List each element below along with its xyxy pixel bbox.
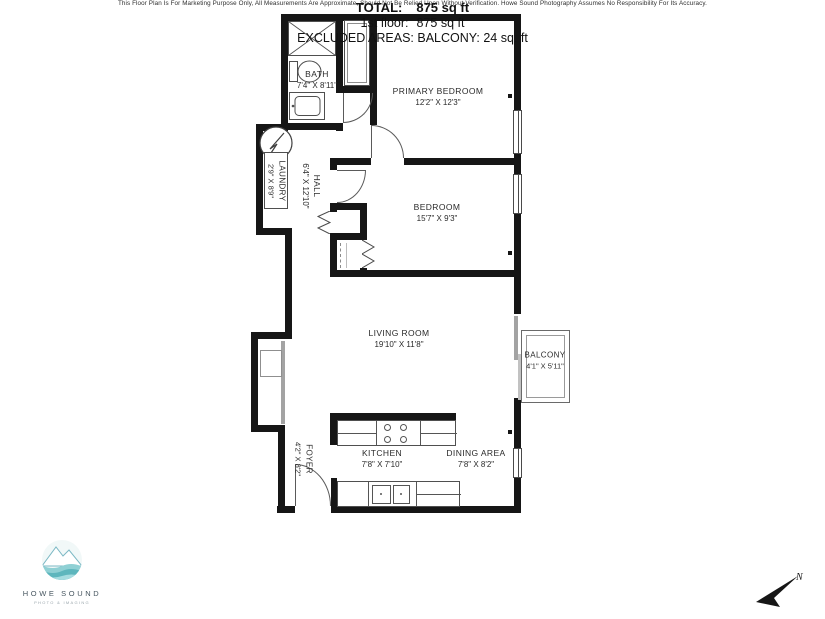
wall-segment xyxy=(285,228,292,339)
room-label-hall: HALL 6'4" X 12'10" xyxy=(300,163,322,208)
dimension-tick xyxy=(373,507,377,511)
door-swing-bath xyxy=(343,93,373,123)
wall-segment xyxy=(330,158,337,170)
window-mullion xyxy=(518,449,519,477)
counter-divider xyxy=(376,421,377,445)
room-label-kitchen: KITCHEN 7'8" X 7'10" xyxy=(362,448,403,470)
wall-segment xyxy=(360,203,367,240)
wall-segment xyxy=(343,86,370,93)
window-mullion xyxy=(518,111,519,153)
wall-segment xyxy=(514,398,521,448)
dimension-tick xyxy=(456,507,460,511)
room-label-laundry: LAUNDRY 2'9" X 8'9" xyxy=(265,161,286,202)
counter-divider xyxy=(416,494,461,495)
floor-plan: BATH 7'4" X 8'11" PRIMARY BEDROOM 12'2" … xyxy=(0,0,825,619)
dimension-tick xyxy=(508,251,512,255)
kitchen-counter-sink xyxy=(337,481,460,507)
stove-burner xyxy=(400,436,407,443)
logo-subtitle: PHOTO & IMAGING xyxy=(16,600,108,605)
counter-divider xyxy=(420,433,457,434)
excluded-line: EXCLUDED AREAS: BALCONY: 24 sq. ft xyxy=(0,31,825,46)
window-symbol xyxy=(513,110,522,154)
room-label-living-room: LIVING ROOM 19'10" X 11'8" xyxy=(368,328,429,350)
room-name: LAUNDRY xyxy=(276,161,286,202)
room-name: PRIMARY BEDROOM xyxy=(393,86,484,97)
room-name: BALCONY xyxy=(524,350,565,360)
bifold-door-bedroom-closet xyxy=(362,240,375,268)
room-label-dining-area: DINING AREA 7'8" X 8'2" xyxy=(446,448,505,470)
room-dims: 2'9" X 8'9" xyxy=(265,161,275,202)
closet-shelf-line xyxy=(346,243,347,268)
closet-rod-dashed xyxy=(340,243,341,268)
room-dims: 7'8" X 8'2" xyxy=(446,460,505,470)
wall-segment xyxy=(330,413,456,420)
north-arrow-icon: N xyxy=(752,567,806,616)
stove-burner xyxy=(400,424,407,431)
door-swing-bedroom xyxy=(337,170,366,203)
sink-drain xyxy=(380,493,382,495)
room-name: DINING AREA xyxy=(446,448,505,459)
howe-sound-logo: HOWE SOUND PHOTO & IMAGING xyxy=(16,539,108,605)
dimension-tick xyxy=(508,430,512,434)
room-dims: 7'8" X 7'10" xyxy=(362,460,403,470)
wall-segment xyxy=(331,506,521,513)
logo-name: HOWE SOUND xyxy=(16,589,108,598)
room-dims: 19'10" X 11'8" xyxy=(368,340,429,350)
dimension-tick xyxy=(424,271,428,275)
disclaimer-text: This Floor Plan Is For Marketing Purpose… xyxy=(0,0,825,7)
counter-divider xyxy=(338,433,376,434)
window-symbol xyxy=(513,448,522,478)
room-name: BEDROOM xyxy=(414,202,461,213)
room-dims: 7'4" X 8'11" xyxy=(297,81,337,91)
room-label-foyer: FOYER 4'2" X 8'2" xyxy=(292,442,313,476)
room-dims: 15'7" X 9'3" xyxy=(414,214,461,224)
logo-mountain-waves-icon xyxy=(24,539,100,581)
kitchen-counter-stove xyxy=(337,420,456,446)
room-label-bath: BATH 7'4" X 8'11" xyxy=(297,69,337,91)
counter-divider xyxy=(368,482,369,506)
sink-drain xyxy=(400,493,402,495)
bifold-door-hall-closet xyxy=(317,211,331,234)
door-swing-primary-bedroom xyxy=(371,125,404,158)
room-dims: 12'2" X 12'3" xyxy=(393,98,484,108)
dimension-tick xyxy=(508,94,512,98)
room-name: HALL xyxy=(311,163,322,208)
window-symbol xyxy=(513,174,522,214)
floor-value: 875 sq ft xyxy=(416,16,464,30)
window-mullion xyxy=(518,175,519,213)
room-dims: 4'1" X 5'11" xyxy=(524,362,565,372)
closet-shelf-outline xyxy=(260,350,282,377)
north-label: N xyxy=(795,572,804,583)
floor-line: 1st floor:875 sq ft xyxy=(0,16,825,31)
floor-label: 1st floor: xyxy=(361,16,409,30)
wall-segment xyxy=(404,158,521,165)
room-name: BATH xyxy=(297,69,337,80)
wall-segment xyxy=(514,214,521,314)
sink-vanity-icon xyxy=(289,92,325,120)
stove-burner xyxy=(384,436,391,443)
room-label-balcony: BALCONY 4'1" X 5'11" xyxy=(524,350,565,371)
room-name: KITCHEN xyxy=(362,448,403,459)
stove-burner xyxy=(384,424,391,431)
wall-segment xyxy=(278,425,285,513)
room-dims: 4'2" X 8'2" xyxy=(292,442,302,476)
room-name: LIVING ROOM xyxy=(368,328,429,339)
room-name: FOYER xyxy=(303,442,313,476)
room-label-bedroom: BEDROOM 15'7" X 9'3" xyxy=(414,202,461,224)
room-dims: 6'4" X 12'10" xyxy=(300,163,310,208)
room-label-primary-bedroom: PRIMARY BEDROOM 12'2" X 12'3" xyxy=(393,86,484,108)
wall-segment xyxy=(251,332,258,432)
wall-segment xyxy=(330,413,337,445)
